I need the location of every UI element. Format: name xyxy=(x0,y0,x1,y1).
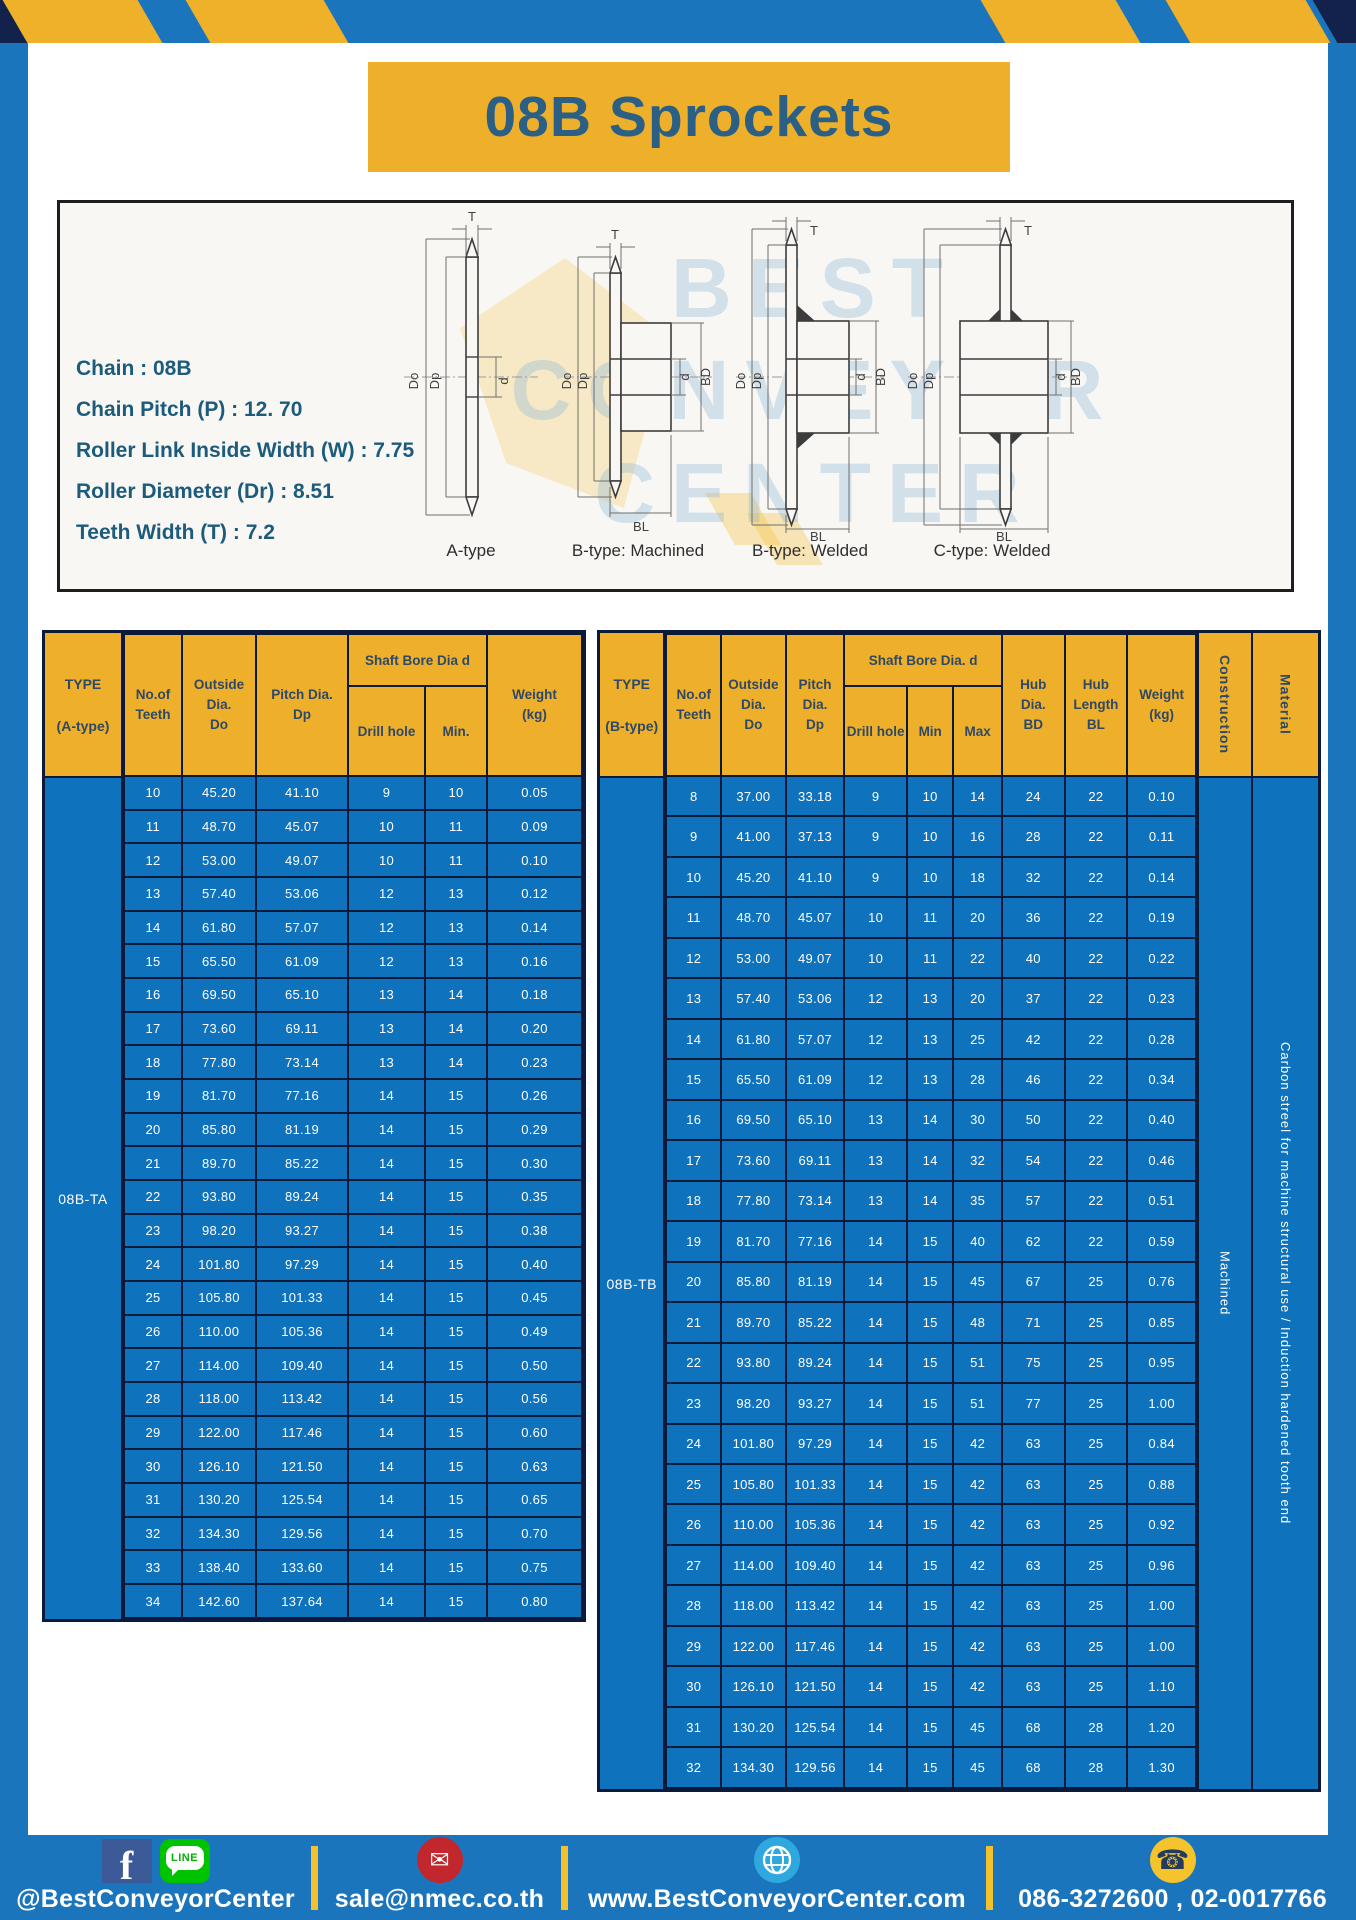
table-cell: 63 xyxy=(1002,1424,1065,1464)
table-cell: 133.60 xyxy=(256,1550,348,1584)
table-cell: 65.50 xyxy=(721,1059,786,1099)
table-cell: 37.00 xyxy=(721,776,786,816)
table-cell: 15 xyxy=(907,1707,953,1747)
table-cell: 118.00 xyxy=(182,1382,256,1416)
hazard-stripe xyxy=(981,0,1141,43)
table-cell: 14 xyxy=(907,1140,953,1180)
table-row: 1669.5065.1013143050220.40 xyxy=(666,1100,1196,1140)
table-row: 32134.30129.5614150.70 xyxy=(124,1517,582,1551)
table-cell: 25 xyxy=(124,1281,182,1315)
table-row: 1461.8057.0712130.14 xyxy=(124,911,582,945)
table-cell: 15 xyxy=(425,1180,487,1214)
table-cell: 89.70 xyxy=(182,1146,256,1180)
table-cell: 21 xyxy=(124,1146,182,1180)
table-cell: 48.70 xyxy=(721,897,786,937)
table-cell: 28 xyxy=(1065,1747,1128,1788)
table-cell: 15 xyxy=(907,1343,953,1383)
line-icon-label: LINE xyxy=(166,1846,204,1870)
table-cell: 45 xyxy=(953,1707,1002,1747)
table-cell: 57.40 xyxy=(721,978,786,1018)
table-cell: 62 xyxy=(1002,1221,1065,1261)
column-header-drill-hole: Drill hole xyxy=(348,686,425,776)
table-cell: 13 xyxy=(844,1140,907,1180)
column-header-weight: Weight(kg) xyxy=(487,634,582,776)
table-cell: 42 xyxy=(953,1585,1002,1625)
table-cell: 14 xyxy=(348,1449,425,1483)
table-cell: 117.46 xyxy=(786,1626,845,1666)
table-cell: 61.09 xyxy=(786,1059,845,1099)
table-cell: 85.22 xyxy=(256,1146,348,1180)
table-cell: 110.00 xyxy=(182,1315,256,1349)
table-cell: 65.50 xyxy=(182,944,256,978)
table-cell: 14 xyxy=(348,1281,425,1315)
table-cell: 63 xyxy=(1002,1504,1065,1544)
sprocket-drawing-b-machined: T Do Dp d BD xyxy=(558,211,718,541)
table-cell: 15 xyxy=(425,1449,487,1483)
table-cell: 81.70 xyxy=(182,1079,256,1113)
table-cell: 15 xyxy=(425,1146,487,1180)
table-cell: 114.00 xyxy=(182,1348,256,1382)
table-cell: 0.59 xyxy=(1127,1221,1196,1261)
table-cell: 22 xyxy=(1065,897,1128,937)
footer-phone-section: ☎ 086-3272600 , 02-0017766 xyxy=(993,1835,1352,1920)
table-cell: 81.70 xyxy=(721,1221,786,1261)
table-cell: 129.56 xyxy=(256,1517,348,1551)
table-cell: 15 xyxy=(425,1348,487,1382)
table-cell: 15 xyxy=(425,1113,487,1147)
table-cell: 77 xyxy=(1002,1383,1065,1423)
table-cell: 15 xyxy=(425,1214,487,1248)
table-row: 2293.8089.2414150.35 xyxy=(124,1180,582,1214)
table-cell: 37.13 xyxy=(786,816,845,856)
table-cell: 17 xyxy=(124,1012,182,1046)
table-row: 1565.5061.0912132846220.34 xyxy=(666,1059,1196,1099)
table-cell: 22 xyxy=(1065,857,1128,897)
table-cell: 10 xyxy=(844,938,907,978)
table-cell: 12 xyxy=(844,978,907,1018)
table-cell: 22 xyxy=(1065,1221,1128,1261)
table-cell: 0.40 xyxy=(487,1247,582,1281)
table-cell: 134.30 xyxy=(721,1747,786,1788)
table-cell: 32 xyxy=(124,1517,182,1551)
table-cell: 0.28 xyxy=(1127,1019,1196,1059)
table-cell: 22 xyxy=(1065,1059,1128,1099)
table-row: 33138.40133.6014150.75 xyxy=(124,1550,582,1584)
table-cell: 0.19 xyxy=(1127,897,1196,937)
table-row: 1253.0049.0710112240220.22 xyxy=(666,938,1196,978)
table-cell: 20 xyxy=(124,1113,182,1147)
table-cell: 137.64 xyxy=(256,1584,348,1618)
table-cell: 0.10 xyxy=(1127,776,1196,816)
table-cell: 15 xyxy=(666,1059,721,1099)
table-cell: 15 xyxy=(907,1262,953,1302)
table-cell: 37 xyxy=(1002,978,1065,1018)
table-cell: 93.27 xyxy=(256,1214,348,1248)
sprocket-diagrams: T Do Dp d A-type xyxy=(396,211,1082,561)
table-cell: 61.80 xyxy=(721,1019,786,1059)
table-cell: 121.50 xyxy=(786,1666,845,1706)
table-cell: 29 xyxy=(124,1416,182,1450)
table-cell: 15 xyxy=(425,1416,487,1450)
table-cell: 105.80 xyxy=(721,1464,786,1504)
table-cell: 45.07 xyxy=(786,897,845,937)
table-cell: 122.00 xyxy=(721,1626,786,1666)
table-cell: 14 xyxy=(348,1247,425,1281)
table-cell: 22 xyxy=(124,1180,182,1214)
table-cell: 25 xyxy=(1065,1343,1128,1383)
table-cell: 25 xyxy=(1065,1545,1128,1585)
table-cell: 15 xyxy=(907,1626,953,1666)
table-cell: 14 xyxy=(844,1585,907,1625)
table-cell: 0.92 xyxy=(1127,1504,1196,1544)
table-row: 1357.4053.0612132037220.23 xyxy=(666,978,1196,1018)
table-cell: 0.30 xyxy=(487,1146,582,1180)
table-cell: 14 xyxy=(425,978,487,1012)
table-cell: 28 xyxy=(953,1059,1002,1099)
table-cell: 14 xyxy=(425,1012,487,1046)
diagram-b-type-machined: T Do Dp d BD xyxy=(558,211,718,561)
table-row: 2189.7085.2214154871250.85 xyxy=(666,1302,1196,1342)
footer-divider xyxy=(561,1846,568,1910)
table-cell: 42 xyxy=(953,1504,1002,1544)
diagram-c-type-welded: T Do Dp d BD xyxy=(902,211,1082,561)
table-cell: 20 xyxy=(953,978,1002,1018)
table-cell: 14 xyxy=(348,1348,425,1382)
table-cell: 25 xyxy=(1065,1626,1128,1666)
table-cell: 41.10 xyxy=(786,857,845,897)
table-cell: 14 xyxy=(844,1302,907,1342)
table-cell: 14 xyxy=(844,1545,907,1585)
table-cell: 9 xyxy=(348,776,425,810)
table-cell: 11 xyxy=(425,843,487,877)
table-cell: 14 xyxy=(907,1100,953,1140)
table-cell: 0.96 xyxy=(1127,1545,1196,1585)
table-cell: 93.27 xyxy=(786,1383,845,1423)
hazard-band-top xyxy=(0,0,1356,43)
table-cell: 10 xyxy=(907,816,953,856)
table-cell: 19 xyxy=(666,1221,721,1261)
table-cell: 1.20 xyxy=(1127,1707,1196,1747)
table-cell: 0.70 xyxy=(487,1517,582,1551)
table-cell: 14 xyxy=(844,1262,907,1302)
table-cell: 35 xyxy=(953,1181,1002,1221)
table-cell: 10 xyxy=(907,776,953,816)
column-header-type-b: TYPE(B-type) xyxy=(600,633,663,778)
table-cell: 0.85 xyxy=(1127,1302,1196,1342)
table-cell: 101.33 xyxy=(786,1464,845,1504)
table-cell: 22 xyxy=(1065,1140,1128,1180)
table-cell: 129.56 xyxy=(786,1747,845,1788)
table-cell: 49.07 xyxy=(786,938,845,978)
table-cell: 0.95 xyxy=(1127,1343,1196,1383)
table-cell: 25 xyxy=(1065,1262,1128,1302)
table-cell: 26 xyxy=(666,1504,721,1544)
diagram-caption: B-type: Machined xyxy=(558,541,718,561)
hazard-stripe xyxy=(1166,0,1331,43)
table-cell: 105.36 xyxy=(786,1504,845,1544)
table-row: 1981.7077.1614154062220.59 xyxy=(666,1221,1196,1261)
table-b-type: TYPE(B-type) 08B-TB No.ofTeeth OutsideDi… xyxy=(597,630,1321,1792)
table-cell: 109.40 xyxy=(256,1348,348,1382)
table-cell: 130.20 xyxy=(721,1707,786,1747)
column-header-shaft-bore: Shaft Bore Dia. d xyxy=(844,634,1002,686)
footer-email-section: ✉ sale@nmec.co.th xyxy=(318,1835,561,1920)
table-cell: 10 xyxy=(907,857,953,897)
table-cell: 1.00 xyxy=(1127,1585,1196,1625)
table-cell: 32 xyxy=(1002,857,1065,897)
table-row: 26110.00105.3614150.49 xyxy=(124,1315,582,1349)
table-a-type: TYPE(A-type) 08B-TA No.ofTeeth OutsideDi… xyxy=(42,630,586,1622)
table-row: 1148.7045.0710110.09 xyxy=(124,810,582,844)
table-cell: 36 xyxy=(1002,897,1065,937)
table-cell: 13 xyxy=(425,911,487,945)
table-a-header: No.ofTeeth OutsideDia.Do Pitch Dia.Dp Sh… xyxy=(124,634,582,776)
table-cell: 63 xyxy=(1002,1585,1065,1625)
table-cell: 0.75 xyxy=(487,1550,582,1584)
table-cell: 28 xyxy=(1065,1707,1128,1747)
facebook-icon: f xyxy=(102,1839,152,1883)
table-cell: 18 xyxy=(666,1181,721,1221)
diagram-caption: B-type: Welded xyxy=(730,541,890,561)
table-cell: 77.16 xyxy=(786,1221,845,1261)
dim-label-bl: BL xyxy=(633,519,649,534)
table-cell: 42 xyxy=(953,1545,1002,1585)
footer-divider xyxy=(311,1846,318,1910)
table-cell: 27 xyxy=(124,1348,182,1382)
hazard-stripe xyxy=(3,0,163,43)
table-row: 2085.8081.1914150.29 xyxy=(124,1113,582,1147)
table-row: 34142.60137.6414150.80 xyxy=(124,1584,582,1618)
table-cell: 13 xyxy=(348,1045,425,1079)
table-row: 2398.2093.2714155177251.00 xyxy=(666,1383,1196,1423)
table-cell: 22 xyxy=(1065,776,1128,816)
table-cell: 126.10 xyxy=(182,1449,256,1483)
table-cell: 69.50 xyxy=(182,978,256,1012)
table-cell: 13 xyxy=(425,877,487,911)
table-cell: 21 xyxy=(666,1302,721,1342)
table-cell: 15 xyxy=(425,1247,487,1281)
table-row: 1148.7045.0710112036220.19 xyxy=(666,897,1196,937)
table-row: 24101.8097.2914154263250.84 xyxy=(666,1424,1196,1464)
footer-website: www.BestConveyorCenter.com xyxy=(588,1885,966,1914)
table-cell: 15 xyxy=(425,1550,487,1584)
table-cell: 46 xyxy=(1002,1059,1065,1099)
table-cell: 0.88 xyxy=(1127,1464,1196,1504)
table-cell: 30 xyxy=(666,1666,721,1706)
table-a-type-column: TYPE(A-type) 08B-TA xyxy=(45,633,123,1619)
table-cell: 16 xyxy=(953,816,1002,856)
table-cell: 10 xyxy=(425,776,487,810)
dim-label-d: d xyxy=(853,373,868,380)
dim-label-d: d xyxy=(496,377,511,384)
table-row: 1461.8057.0712132542220.28 xyxy=(666,1019,1196,1059)
construction-column: Construction Machined xyxy=(1197,633,1251,1789)
table-cell: 45.20 xyxy=(182,776,256,810)
table-row: 1981.7077.1614150.26 xyxy=(124,1079,582,1113)
table-cell: 28 xyxy=(666,1585,721,1625)
table-row: 29122.00117.4614150.60 xyxy=(124,1416,582,1450)
table-cell: 15 xyxy=(907,1302,953,1342)
table-cell: 73.14 xyxy=(786,1181,845,1221)
table-cell: 14 xyxy=(953,776,1002,816)
footer-website-section: www.BestConveyorCenter.com xyxy=(568,1835,986,1920)
table-cell: 97.29 xyxy=(786,1424,845,1464)
table-cell: 14 xyxy=(844,1504,907,1544)
table-row: 1877.8073.1413140.23 xyxy=(124,1045,582,1079)
table-cell: 14 xyxy=(844,1221,907,1261)
column-header-min: Min. xyxy=(425,686,487,776)
table-cell: 13 xyxy=(348,978,425,1012)
table-cell: 75 xyxy=(1002,1343,1065,1383)
table-cell: 24 xyxy=(1002,776,1065,816)
table-cell: 93.80 xyxy=(182,1180,256,1214)
table-b-type-column: TYPE(B-type) 08B-TB xyxy=(600,633,665,1789)
table-cell: 73.60 xyxy=(182,1012,256,1046)
table-cell: 50 xyxy=(1002,1100,1065,1140)
table-cell: 22 xyxy=(1065,816,1128,856)
footer-bar: f LINE @BestConveyorCenter ✉ sale@nmec.c… xyxy=(0,1835,1356,1920)
table-cell: 0.20 xyxy=(487,1012,582,1046)
table-cell: 15 xyxy=(425,1281,487,1315)
table-cell: 0.23 xyxy=(487,1045,582,1079)
table-row: 28118.00113.4214154263251.00 xyxy=(666,1585,1196,1625)
table-cell: 14 xyxy=(348,1113,425,1147)
table-cell: 48.70 xyxy=(182,810,256,844)
dim-label-d: d xyxy=(677,373,692,380)
column-header-teeth: No.ofTeeth xyxy=(124,634,182,776)
table-cell: 16 xyxy=(124,978,182,1012)
table-a-grid: No.ofTeeth OutsideDia.Do Pitch Dia.Dp Sh… xyxy=(123,633,583,1619)
table-cell: 15 xyxy=(907,1464,953,1504)
table-cell: 0.46 xyxy=(1127,1140,1196,1180)
table-cell: 130.20 xyxy=(182,1483,256,1517)
table-cell: 113.42 xyxy=(256,1382,348,1416)
table-cell: 14 xyxy=(348,1483,425,1517)
table-row: 26110.00105.3614154263250.92 xyxy=(666,1504,1196,1544)
table-row: 32134.30129.5614154568281.30 xyxy=(666,1747,1196,1788)
hazard-stripe xyxy=(186,0,349,43)
column-header-teeth: No.ofTeeth xyxy=(666,634,721,776)
sprocket-drawing-b-welded: T Do Dp d BD xyxy=(730,211,890,541)
table-cell: 25 xyxy=(666,1464,721,1504)
table-cell: 14 xyxy=(348,1416,425,1450)
table-cell: 42 xyxy=(953,1626,1002,1666)
table-cell: 85.80 xyxy=(182,1113,256,1147)
sprocket-drawing-a: T Do Dp d xyxy=(396,211,546,541)
table-cell: 14 xyxy=(348,1146,425,1180)
table-row: 27114.00109.4014150.50 xyxy=(124,1348,582,1382)
table-cell: 9 xyxy=(844,857,907,897)
table-row: 27114.00109.4014154263250.96 xyxy=(666,1545,1196,1585)
table-cell: 93.80 xyxy=(721,1343,786,1383)
table-cell: 61.80 xyxy=(182,911,256,945)
footer-social-section: f LINE @BestConveyorCenter xyxy=(0,1835,311,1920)
table-cell: 14 xyxy=(844,1626,907,1666)
table-cell: 25 xyxy=(1065,1504,1128,1544)
sprocket-drawing-c-welded: T Do Dp d BD xyxy=(902,211,1082,541)
column-header-shaft-bore: Shaft Bore Dia d xyxy=(348,634,487,686)
table-cell: 29 xyxy=(666,1626,721,1666)
table-cell: 15 xyxy=(425,1079,487,1113)
table-cell: 23 xyxy=(124,1214,182,1248)
table-cell: 53.06 xyxy=(256,877,348,911)
table-cell: 0.11 xyxy=(1127,816,1196,856)
table-cell: 45 xyxy=(953,1747,1002,1788)
table-cell: 121.50 xyxy=(256,1449,348,1483)
dim-label-bd: BD xyxy=(698,368,713,386)
table-cell: 30 xyxy=(124,1449,182,1483)
dim-label-do: Do xyxy=(905,373,920,390)
table-cell: 14 xyxy=(425,1045,487,1079)
table-cell: 126.10 xyxy=(721,1666,786,1706)
column-header-type-a: TYPE(A-type) xyxy=(45,633,121,778)
table-cell: 0.22 xyxy=(1127,938,1196,978)
table-row: 941.0037.139101628220.11 xyxy=(666,816,1196,856)
type-value-b: 08B-TB xyxy=(600,778,663,1789)
table-cell: 42 xyxy=(1002,1019,1065,1059)
dim-label-t: T xyxy=(611,227,619,242)
table-cell: 69.11 xyxy=(256,1012,348,1046)
column-header-hub-length: HubLengthBL xyxy=(1065,634,1128,776)
table-cell: 57.40 xyxy=(182,877,256,911)
table-cell: 49.07 xyxy=(256,843,348,877)
table-cell: 61.09 xyxy=(256,944,348,978)
page: 08B Sprockets BESTCONVEYORCENTER Chain :… xyxy=(0,0,1356,1920)
table-b-grid: No.ofTeeth OutsideDia.Do PitchDia.Dp Sha… xyxy=(665,633,1197,1789)
column-header-outside-dia: OutsideDia.Do xyxy=(721,634,786,776)
table-row: 1357.4053.0612130.12 xyxy=(124,877,582,911)
table-cell: 57 xyxy=(1002,1181,1065,1221)
table-cell: 14 xyxy=(348,1550,425,1584)
table-cell: 0.29 xyxy=(487,1113,582,1147)
table-row: 1773.6069.1113143254220.46 xyxy=(666,1140,1196,1180)
table-row: 1045.2041.109101832220.14 xyxy=(666,857,1196,897)
table-cell: 0.16 xyxy=(487,944,582,978)
table-cell: 10 xyxy=(124,776,182,810)
table-cell: 105.80 xyxy=(182,1281,256,1315)
table-cell: 25 xyxy=(1065,1464,1128,1504)
table-cell: 122.00 xyxy=(182,1416,256,1450)
column-header-pitch-dia: Pitch Dia.Dp xyxy=(256,634,348,776)
table-cell: 28 xyxy=(124,1382,182,1416)
table-cell: 15 xyxy=(425,1517,487,1551)
content-page: 08B Sprockets BESTCONVEYORCENTER Chain :… xyxy=(28,43,1328,1835)
table-cell: 10 xyxy=(348,810,425,844)
table-cell: 85.80 xyxy=(721,1262,786,1302)
table-cell: 14 xyxy=(348,1180,425,1214)
table-cell: 40 xyxy=(1002,938,1065,978)
table-cell: 142.60 xyxy=(182,1584,256,1618)
table-cell: 15 xyxy=(907,1585,953,1625)
table-cell: 54 xyxy=(1002,1140,1065,1180)
table-cell: 14 xyxy=(348,1315,425,1349)
diagram-a-type: T Do Dp d A-type xyxy=(396,211,546,561)
table-cell: 25 xyxy=(1065,1666,1128,1706)
table-cell: 13 xyxy=(907,978,953,1018)
table-cell: 14 xyxy=(844,1707,907,1747)
table-cell: 77.80 xyxy=(182,1045,256,1079)
title-banner: 08B Sprockets xyxy=(368,62,1010,172)
table-b-header: No.ofTeeth OutsideDia.Do PitchDia.Dp Sha… xyxy=(666,634,1196,776)
table-row: 31130.20125.5414150.65 xyxy=(124,1483,582,1517)
table-a-body: 1045.2041.109100.051148.7045.0710110.091… xyxy=(124,776,582,1618)
table-cell: 48 xyxy=(953,1302,1002,1342)
table-cell: 0.14 xyxy=(1127,857,1196,897)
table-cell: 89.24 xyxy=(256,1180,348,1214)
table-cell: 31 xyxy=(666,1707,721,1747)
table-row: 837.0033.189101424220.10 xyxy=(666,776,1196,816)
table-cell: 20 xyxy=(666,1262,721,1302)
